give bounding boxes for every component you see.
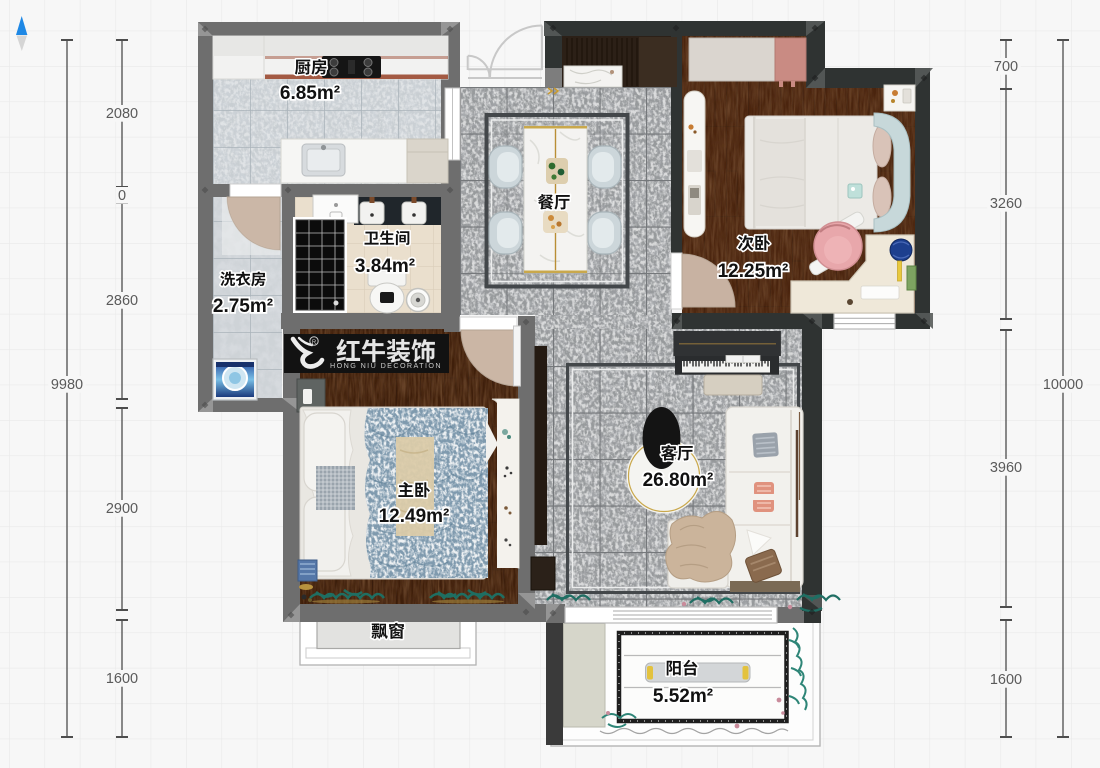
svg-text:3960: 3960 (990, 460, 1022, 476)
svg-text:12.25m²: 12.25m² (718, 261, 789, 282)
svg-text:5.52m²: 5.52m² (653, 686, 713, 707)
svg-text:6.85m²: 6.85m² (280, 83, 340, 104)
svg-text:10000: 10000 (1043, 377, 1083, 393)
svg-text:HONG NIU DECORATION: HONG NIU DECORATION (330, 361, 442, 370)
svg-text:2.75m²: 2.75m² (213, 296, 273, 317)
svg-text:0: 0 (118, 188, 126, 204)
svg-text:1600: 1600 (106, 671, 138, 687)
svg-text:700: 700 (994, 59, 1018, 75)
svg-text:R: R (312, 340, 317, 346)
svg-text:2900: 2900 (106, 501, 138, 517)
svg-text:2860: 2860 (106, 293, 138, 309)
svg-text:26.80m²: 26.80m² (643, 470, 714, 491)
svg-text:12.49m²: 12.49m² (379, 506, 450, 527)
svg-text:1600: 1600 (990, 672, 1022, 688)
svg-text:3.84m²: 3.84m² (355, 256, 415, 277)
svg-text:2080: 2080 (106, 106, 138, 122)
svg-text:3260: 3260 (990, 196, 1022, 212)
svg-text:9980: 9980 (51, 377, 83, 393)
